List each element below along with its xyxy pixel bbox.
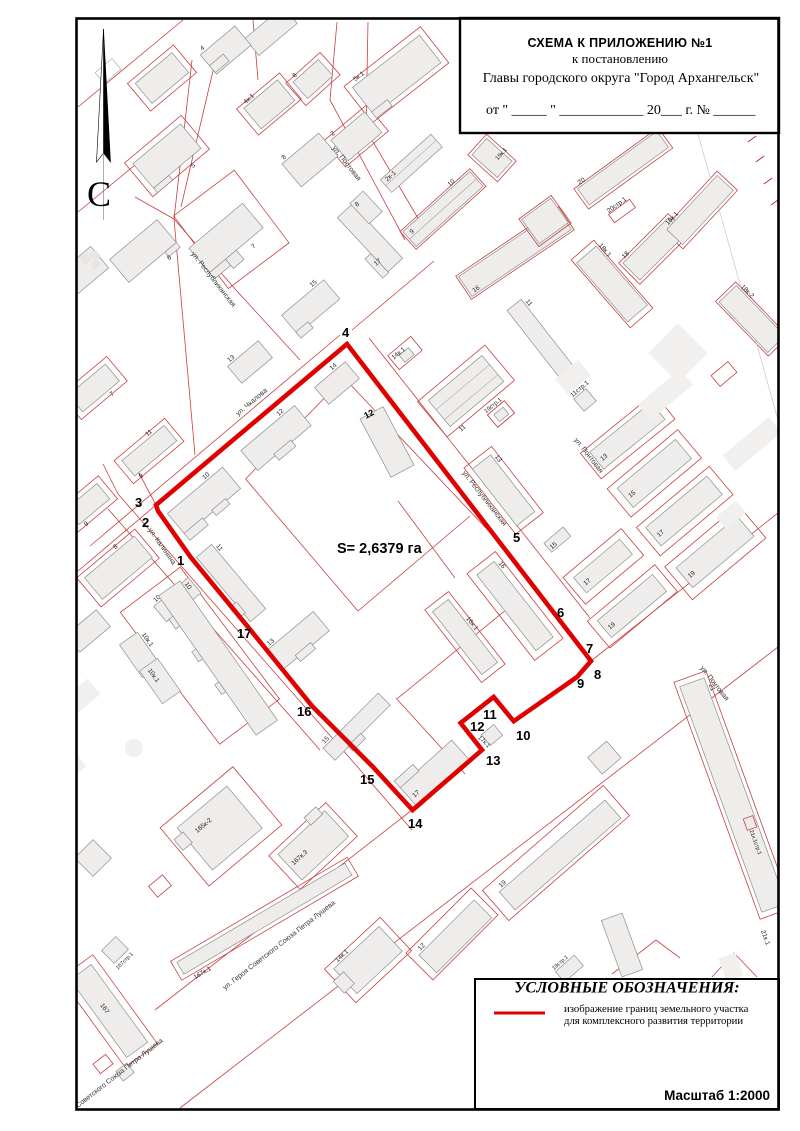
svg-text:2: 2 xyxy=(142,515,149,530)
svg-text:9: 9 xyxy=(577,676,584,691)
svg-text:к постановлению: к постановлению xyxy=(572,51,668,66)
svg-text:8: 8 xyxy=(594,667,601,682)
svg-text:6: 6 xyxy=(557,605,564,620)
svg-text:S= 2,6379 га: S= 2,6379 га xyxy=(337,541,423,557)
svg-text:15: 15 xyxy=(360,772,374,787)
svg-text:СХЕМА К ПРИЛОЖЕНИЮ №1: СХЕМА К ПРИЛОЖЕНИЮ №1 xyxy=(527,36,712,50)
svg-text:Главы городского округа "Город: Главы городского округа "Город Архангель… xyxy=(483,71,759,86)
svg-text:для комплексного развития терр: для комплексного развития территории xyxy=(564,1015,743,1027)
svg-text:1: 1 xyxy=(177,553,184,568)
svg-text:16: 16 xyxy=(297,704,311,719)
svg-text:5: 5 xyxy=(513,530,520,545)
svg-text:17: 17 xyxy=(237,626,251,641)
svg-text:изображение границ земельного: изображение границ земельного участка xyxy=(564,1003,749,1015)
svg-text:12: 12 xyxy=(470,719,484,734)
svg-text:7: 7 xyxy=(586,641,593,656)
svg-text:от " _____ " ____________ 20__: от " _____ " ____________ 20___ г. № ___… xyxy=(486,103,756,118)
svg-text:11: 11 xyxy=(483,707,497,722)
svg-text:3: 3 xyxy=(135,495,142,510)
svg-text:13: 13 xyxy=(486,753,500,768)
svg-text:УСЛОВНЫЕ ОБОЗНАЧЕНИЯ:: УСЛОВНЫЕ ОБОЗНАЧЕНИЯ: xyxy=(514,980,739,997)
svg-text:С: С xyxy=(87,174,111,214)
svg-text:14: 14 xyxy=(408,816,423,831)
svg-text:4: 4 xyxy=(342,325,350,340)
svg-text:10: 10 xyxy=(516,728,530,743)
svg-text:Масштаб 1:2000: Масштаб 1:2000 xyxy=(664,1088,770,1103)
